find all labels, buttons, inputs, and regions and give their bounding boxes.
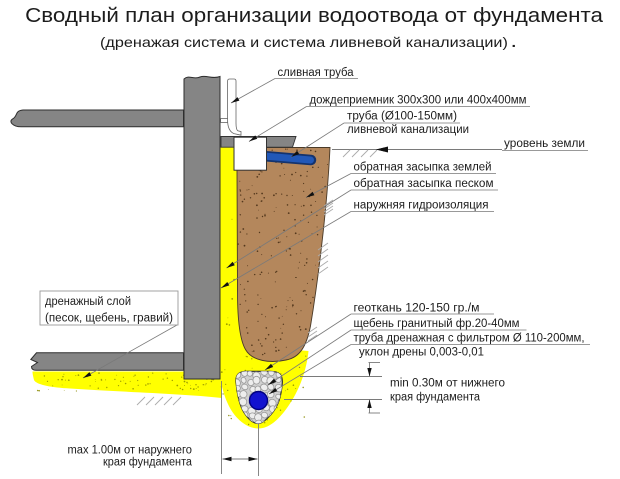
svg-text:обратная засыпка землей: обратная засыпка землей [354,162,492,174]
svg-text:min 0.30м от нижнего: min 0.30м от нижнего [390,378,505,390]
svg-text:обратная засыпка песком: обратная засыпка песком [354,178,494,190]
svg-text:труба (Ø100-150мм): труба (Ø100-150мм) [347,111,457,123]
svg-text:труба дренажная с фильтром Ø 1: труба дренажная с фильтром Ø 110-200мм, [354,333,585,345]
svg-text:наружняя гидроизоляция: наружняя гидроизоляция [354,200,489,212]
svg-text:уклон дрены 0,003-0,01: уклон дрены 0,003-0,01 [359,347,484,359]
svg-text:дождеприемник 300x300 или 400x: дождеприемник 300x300 или 400x400мм [310,95,527,107]
svg-text:дренажный слой: дренажный слой [45,296,131,308]
svg-text:ливневой канализации: ливневой канализации [347,124,469,136]
svg-text:сливная труба: сливная труба [278,67,355,79]
svg-text:(песок, щебень, гравий): (песок, щебень, гравий) [45,313,173,325]
svg-text:(дренажая система и система ли: (дренажая система и система ливневой кан… [100,36,516,50]
svg-text:края фундамента: края фундамента [103,457,193,469]
svg-text:max 1.00м от наружнего: max 1.00м от наружнего [68,445,193,457]
svg-text:края фундамента: края фундамента [390,392,481,404]
svg-text:щебень гранитный фр.20-40мм: щебень гранитный фр.20-40мм [354,318,520,330]
svg-text:геоткань 120-150 гр./м: геоткань 120-150 гр./м [354,303,480,315]
svg-text:Сводный план организации водоо: Сводный план организации водоотвода от ф… [25,5,603,27]
svg-text:уровень земли: уровень земли [504,138,585,150]
